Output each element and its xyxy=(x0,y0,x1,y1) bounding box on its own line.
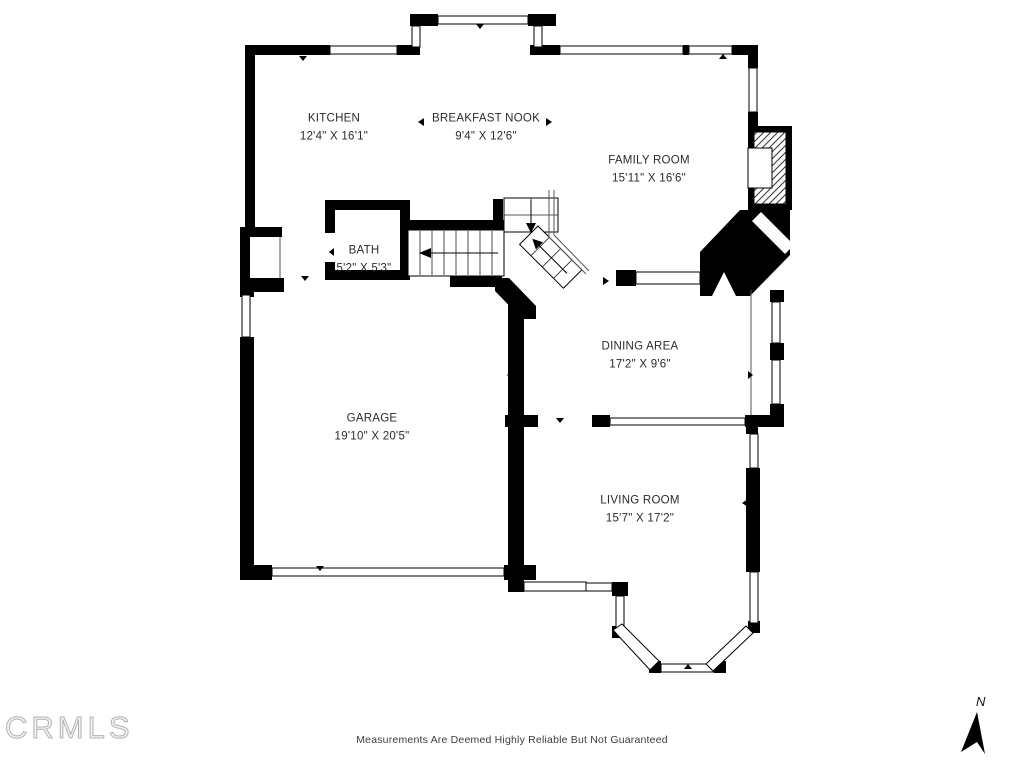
room-dimensions: 5'2" X 5'3" xyxy=(337,260,392,278)
room-dimensions: 19'10" X 20'5" xyxy=(335,428,410,446)
disclaimer-text: Measurements Are Deemed Highly Reliable … xyxy=(0,734,1024,746)
room-label-garage: GARAGE 19'10" X 20'5" xyxy=(335,411,410,446)
room-dimensions: 15'11" X 16'6" xyxy=(608,170,690,188)
room-dimensions: 17'2" X 9'6" xyxy=(602,356,679,374)
north-label: N xyxy=(976,694,985,709)
room-name: LIVING ROOM xyxy=(600,493,679,511)
room-name: GARAGE xyxy=(335,411,410,429)
room-name: BREAKFAST NOOK xyxy=(432,111,540,129)
room-label-dining-area: DINING AREA 17'2" X 9'6" xyxy=(602,339,679,374)
room-label-breakfast-nook: BREAKFAST NOOK 9'4" X 12'6" xyxy=(432,111,540,146)
room-name: DINING AREA xyxy=(602,339,679,357)
firebox xyxy=(748,148,772,188)
entry-angled-walls xyxy=(700,210,794,296)
room-dimensions: 15'7" X 17'2" xyxy=(600,510,679,528)
room-label-kitchen: KITCHEN 12'4" X 16'1" xyxy=(300,111,368,146)
room-dimensions: 9'4" X 12'6" xyxy=(432,128,540,146)
room-name: BATH xyxy=(337,243,392,261)
room-name: KITCHEN xyxy=(300,111,368,129)
room-label-living-room: LIVING ROOM 15'7" X 17'2" xyxy=(600,493,679,528)
room-dimensions: 12'4" X 16'1" xyxy=(300,128,368,146)
fireplace xyxy=(748,126,792,210)
room-label-bath: BATH 5'2" X 5'3" xyxy=(337,243,392,278)
room-name: FAMILY ROOM xyxy=(608,153,690,171)
compass: N xyxy=(952,692,1012,762)
room-label-family-room: FAMILY ROOM 15'11" X 16'6" xyxy=(608,153,690,188)
